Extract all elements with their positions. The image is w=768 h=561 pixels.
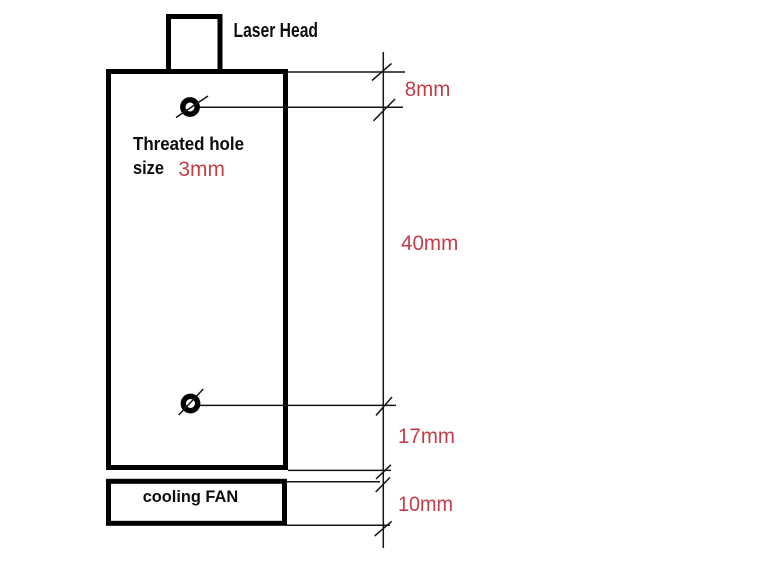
svg-text:8mm: 8mm [405,78,451,101]
svg-text:3mm: 3mm [178,157,225,181]
svg-text:17mm: 17mm [398,425,455,448]
svg-text:Laser Head: Laser Head [234,20,319,42]
svg-text:size: size [133,158,164,178]
svg-text:cooling FAN: cooling FAN [143,487,239,506]
svg-text:10mm: 10mm [398,493,453,516]
svg-text:Threated hole: Threated hole [133,134,244,154]
svg-text:40mm: 40mm [401,232,458,255]
